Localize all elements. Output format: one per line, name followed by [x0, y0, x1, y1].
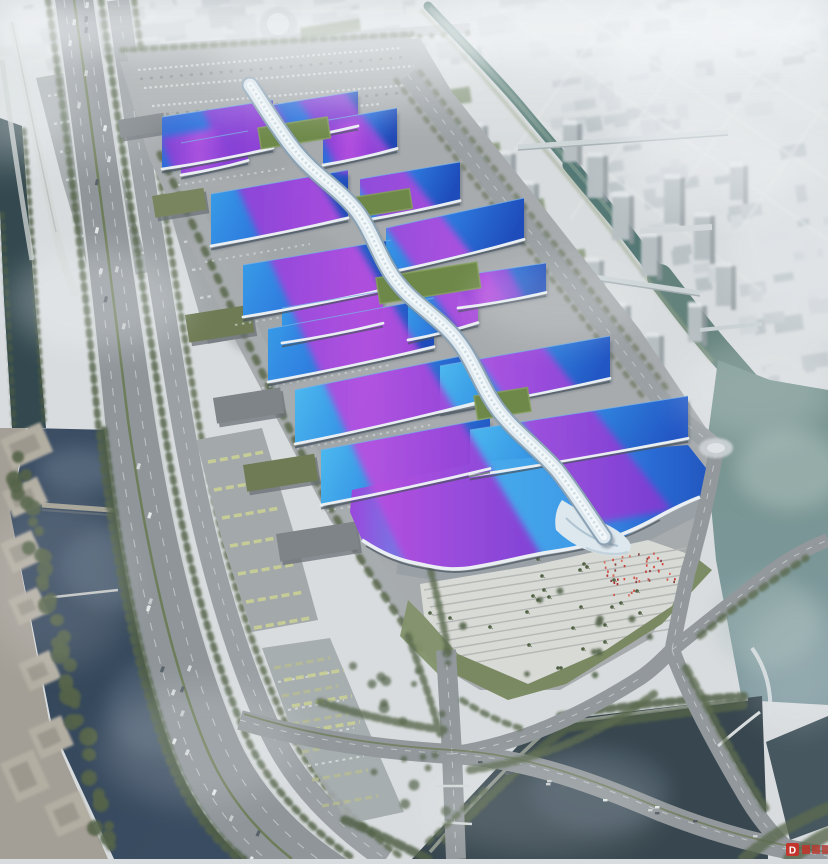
svg-text:D: D	[789, 846, 796, 857]
